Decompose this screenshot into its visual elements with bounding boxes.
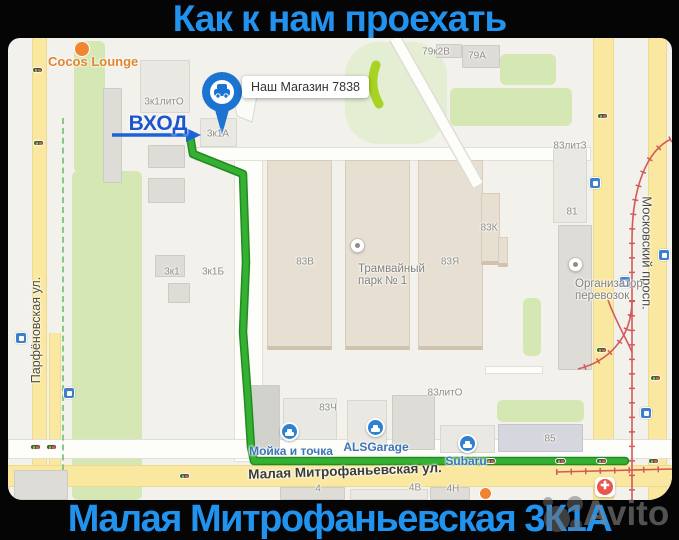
tram-line (556, 139, 672, 500)
traffic-light-icon (46, 444, 57, 450)
building-label: 83литО (428, 388, 463, 399)
poi-label-carwash: Мойка и точка (249, 444, 333, 458)
page-title: Как к нам проехать (0, 0, 679, 38)
entrance-label: ВХОД (129, 112, 188, 136)
building-label: 79к2В (422, 47, 450, 58)
alsgarage-icon[interactable] (366, 418, 385, 437)
building-label: 83Я (441, 257, 459, 268)
traffic-light-icon (596, 458, 607, 464)
traffic-light-icon (596, 347, 607, 353)
tram-park-icon[interactable] (350, 238, 365, 253)
building-label: 3к1 (164, 267, 180, 278)
building-label: 3к1А (207, 129, 229, 140)
traffic-light-icon (33, 140, 44, 146)
street-label-moskovsky: Московский просп. (640, 196, 655, 310)
subaru-icon[interactable] (458, 434, 477, 453)
traffic-light-icon (179, 473, 190, 479)
traffic-light-icon (648, 458, 659, 464)
building-label: 85 (544, 434, 555, 445)
building-label: 3к1Б (202, 267, 224, 278)
building-label: 83литЗ (553, 141, 586, 152)
poi-label-subaru: Subaru (445, 454, 486, 468)
bus-stop-icon (63, 387, 75, 399)
street-label-parfyonovskaya: Парфёновская ул. (29, 277, 43, 383)
building-label: 4 (315, 484, 321, 495)
carwash-icon[interactable] (280, 422, 299, 441)
lime-marker (373, 65, 379, 104)
bus-stop-icon (15, 332, 27, 344)
building-label: 83В (296, 257, 314, 268)
route-line (190, 136, 625, 461)
poi-label-alsgarage: ALSGarage (343, 440, 408, 454)
building-label: 4В (409, 483, 421, 494)
traffic-light-icon (555, 458, 566, 464)
pharmacy-icon[interactable] (595, 477, 615, 497)
poi-label-cocos: Cocos Lounge (48, 54, 138, 69)
org-icon[interactable] (568, 257, 583, 272)
traffic-light-icon (32, 67, 43, 73)
bus-stop-icon (658, 249, 670, 261)
map-canvas[interactable]: 3к1литО 3к1А 3к1 3к1Б 83В 83Я 83К 83литЗ… (8, 38, 672, 500)
building-label: 83К (481, 223, 498, 234)
building-label: 3к1литО (144, 97, 183, 108)
bus-stop-icon (640, 407, 652, 419)
building-label: 83Ч (319, 403, 337, 414)
address-title: Малая Митрофаньевская 3К1А (0, 499, 679, 540)
route-line-inner (190, 136, 625, 461)
traffic-light-icon (597, 113, 608, 119)
shop-tooltip[interactable]: Наш Магазин 7838 (242, 76, 369, 98)
promo-image: { "header": { "title": "Как к нам проеха… (0, 0, 679, 540)
traffic-light-icon (30, 444, 41, 450)
bus-stop-icon (589, 177, 601, 189)
building-label: 79А (468, 51, 486, 62)
traffic-light-icon (650, 375, 661, 381)
building-label: 81 (566, 207, 577, 218)
building-label: 4Н (447, 484, 460, 495)
